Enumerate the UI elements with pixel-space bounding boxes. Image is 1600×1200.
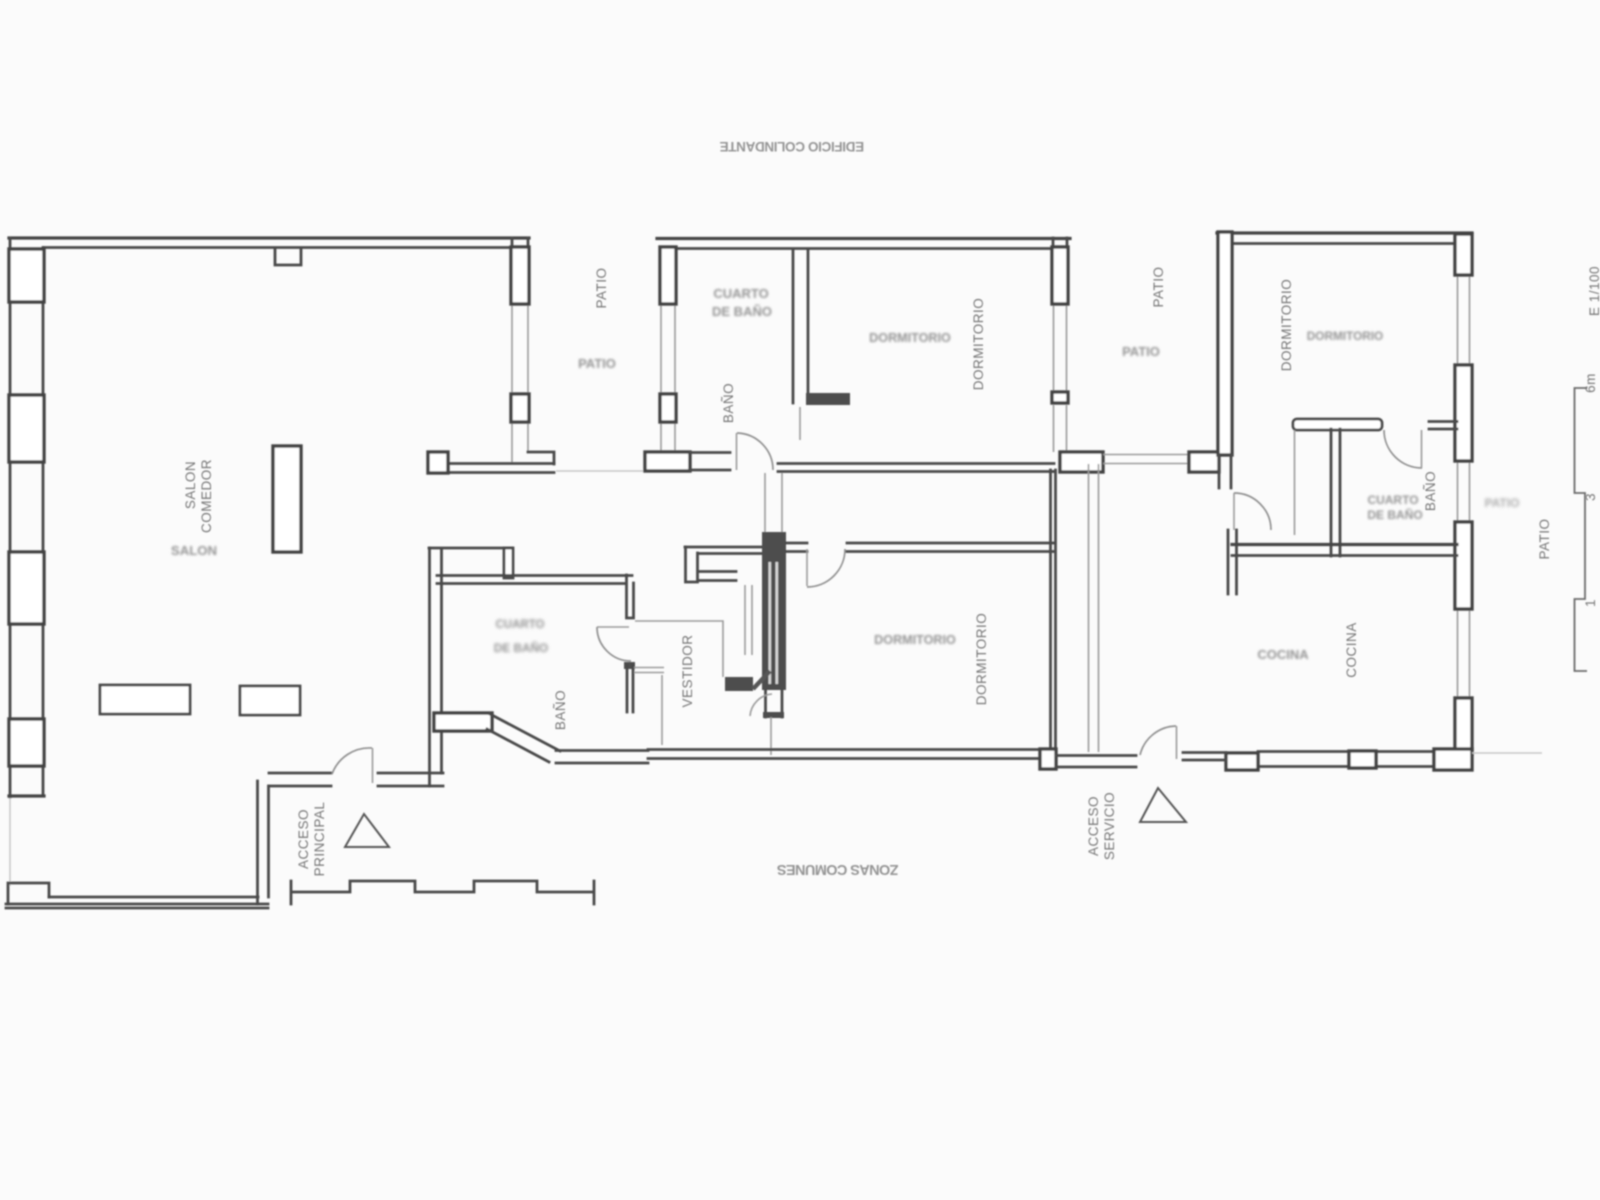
svg-text:DORMITORIO: DORMITORIO — [971, 298, 986, 391]
svg-text:EDIFICIO COLINDANTE: EDIFICIO COLINDANTE — [720, 139, 864, 154]
svg-text:PATIO: PATIO — [1122, 344, 1160, 359]
svg-text:PATIO: PATIO — [594, 267, 609, 308]
svg-text:CUARTO: CUARTO — [713, 286, 768, 301]
svg-text:COMEDOR: COMEDOR — [199, 459, 214, 533]
svg-text:DE BAÑO: DE BAÑO — [1367, 507, 1422, 522]
svg-text:DORMITORIO: DORMITORIO — [974, 613, 989, 706]
svg-text:DORMITORIO: DORMITORIO — [1279, 279, 1294, 372]
svg-text:PATIO: PATIO — [1151, 266, 1166, 307]
svg-text:1: 1 — [1583, 599, 1598, 607]
svg-text:BAÑO: BAÑO — [553, 690, 568, 730]
svg-text:VESTIDOR: VESTIDOR — [680, 634, 695, 707]
svg-text:ZONAS COMUNES: ZONAS COMUNES — [777, 861, 899, 877]
svg-text:ACCESO: ACCESO — [1086, 796, 1101, 856]
svg-text:CUARTO: CUARTO — [496, 619, 545, 631]
svg-text:DORMITORIO: DORMITORIO — [1307, 329, 1383, 343]
svg-text:SERVICIO: SERVICIO — [1102, 792, 1117, 860]
svg-text:COCINA: COCINA — [1257, 647, 1309, 662]
svg-text:CUARTO: CUARTO — [1367, 493, 1418, 507]
svg-text:DORMITORIO: DORMITORIO — [869, 331, 951, 345]
svg-text:E 1/100: E 1/100 — [1587, 266, 1600, 316]
svg-text:PATIO: PATIO — [1485, 496, 1520, 510]
svg-text:SALON: SALON — [183, 461, 198, 509]
svg-text:PATIO: PATIO — [578, 356, 616, 371]
svg-text:3: 3 — [1583, 493, 1598, 501]
svg-text:BAÑO: BAÑO — [1423, 471, 1438, 511]
svg-text:DE BAÑO: DE BAÑO — [494, 641, 548, 655]
svg-text:ACCESO: ACCESO — [296, 809, 311, 869]
svg-text:COCINA: COCINA — [1344, 622, 1359, 678]
svg-text:PATIO: PATIO — [1537, 518, 1552, 559]
svg-text:6m: 6m — [1583, 373, 1598, 393]
svg-text:DE BAÑO: DE BAÑO — [712, 304, 772, 319]
svg-text:DORMITORIO: DORMITORIO — [874, 633, 956, 647]
svg-text:SALON: SALON — [171, 543, 217, 558]
svg-text:PRINCIPAL: PRINCIPAL — [312, 802, 327, 877]
svg-text:BAÑO: BAÑO — [721, 383, 736, 423]
